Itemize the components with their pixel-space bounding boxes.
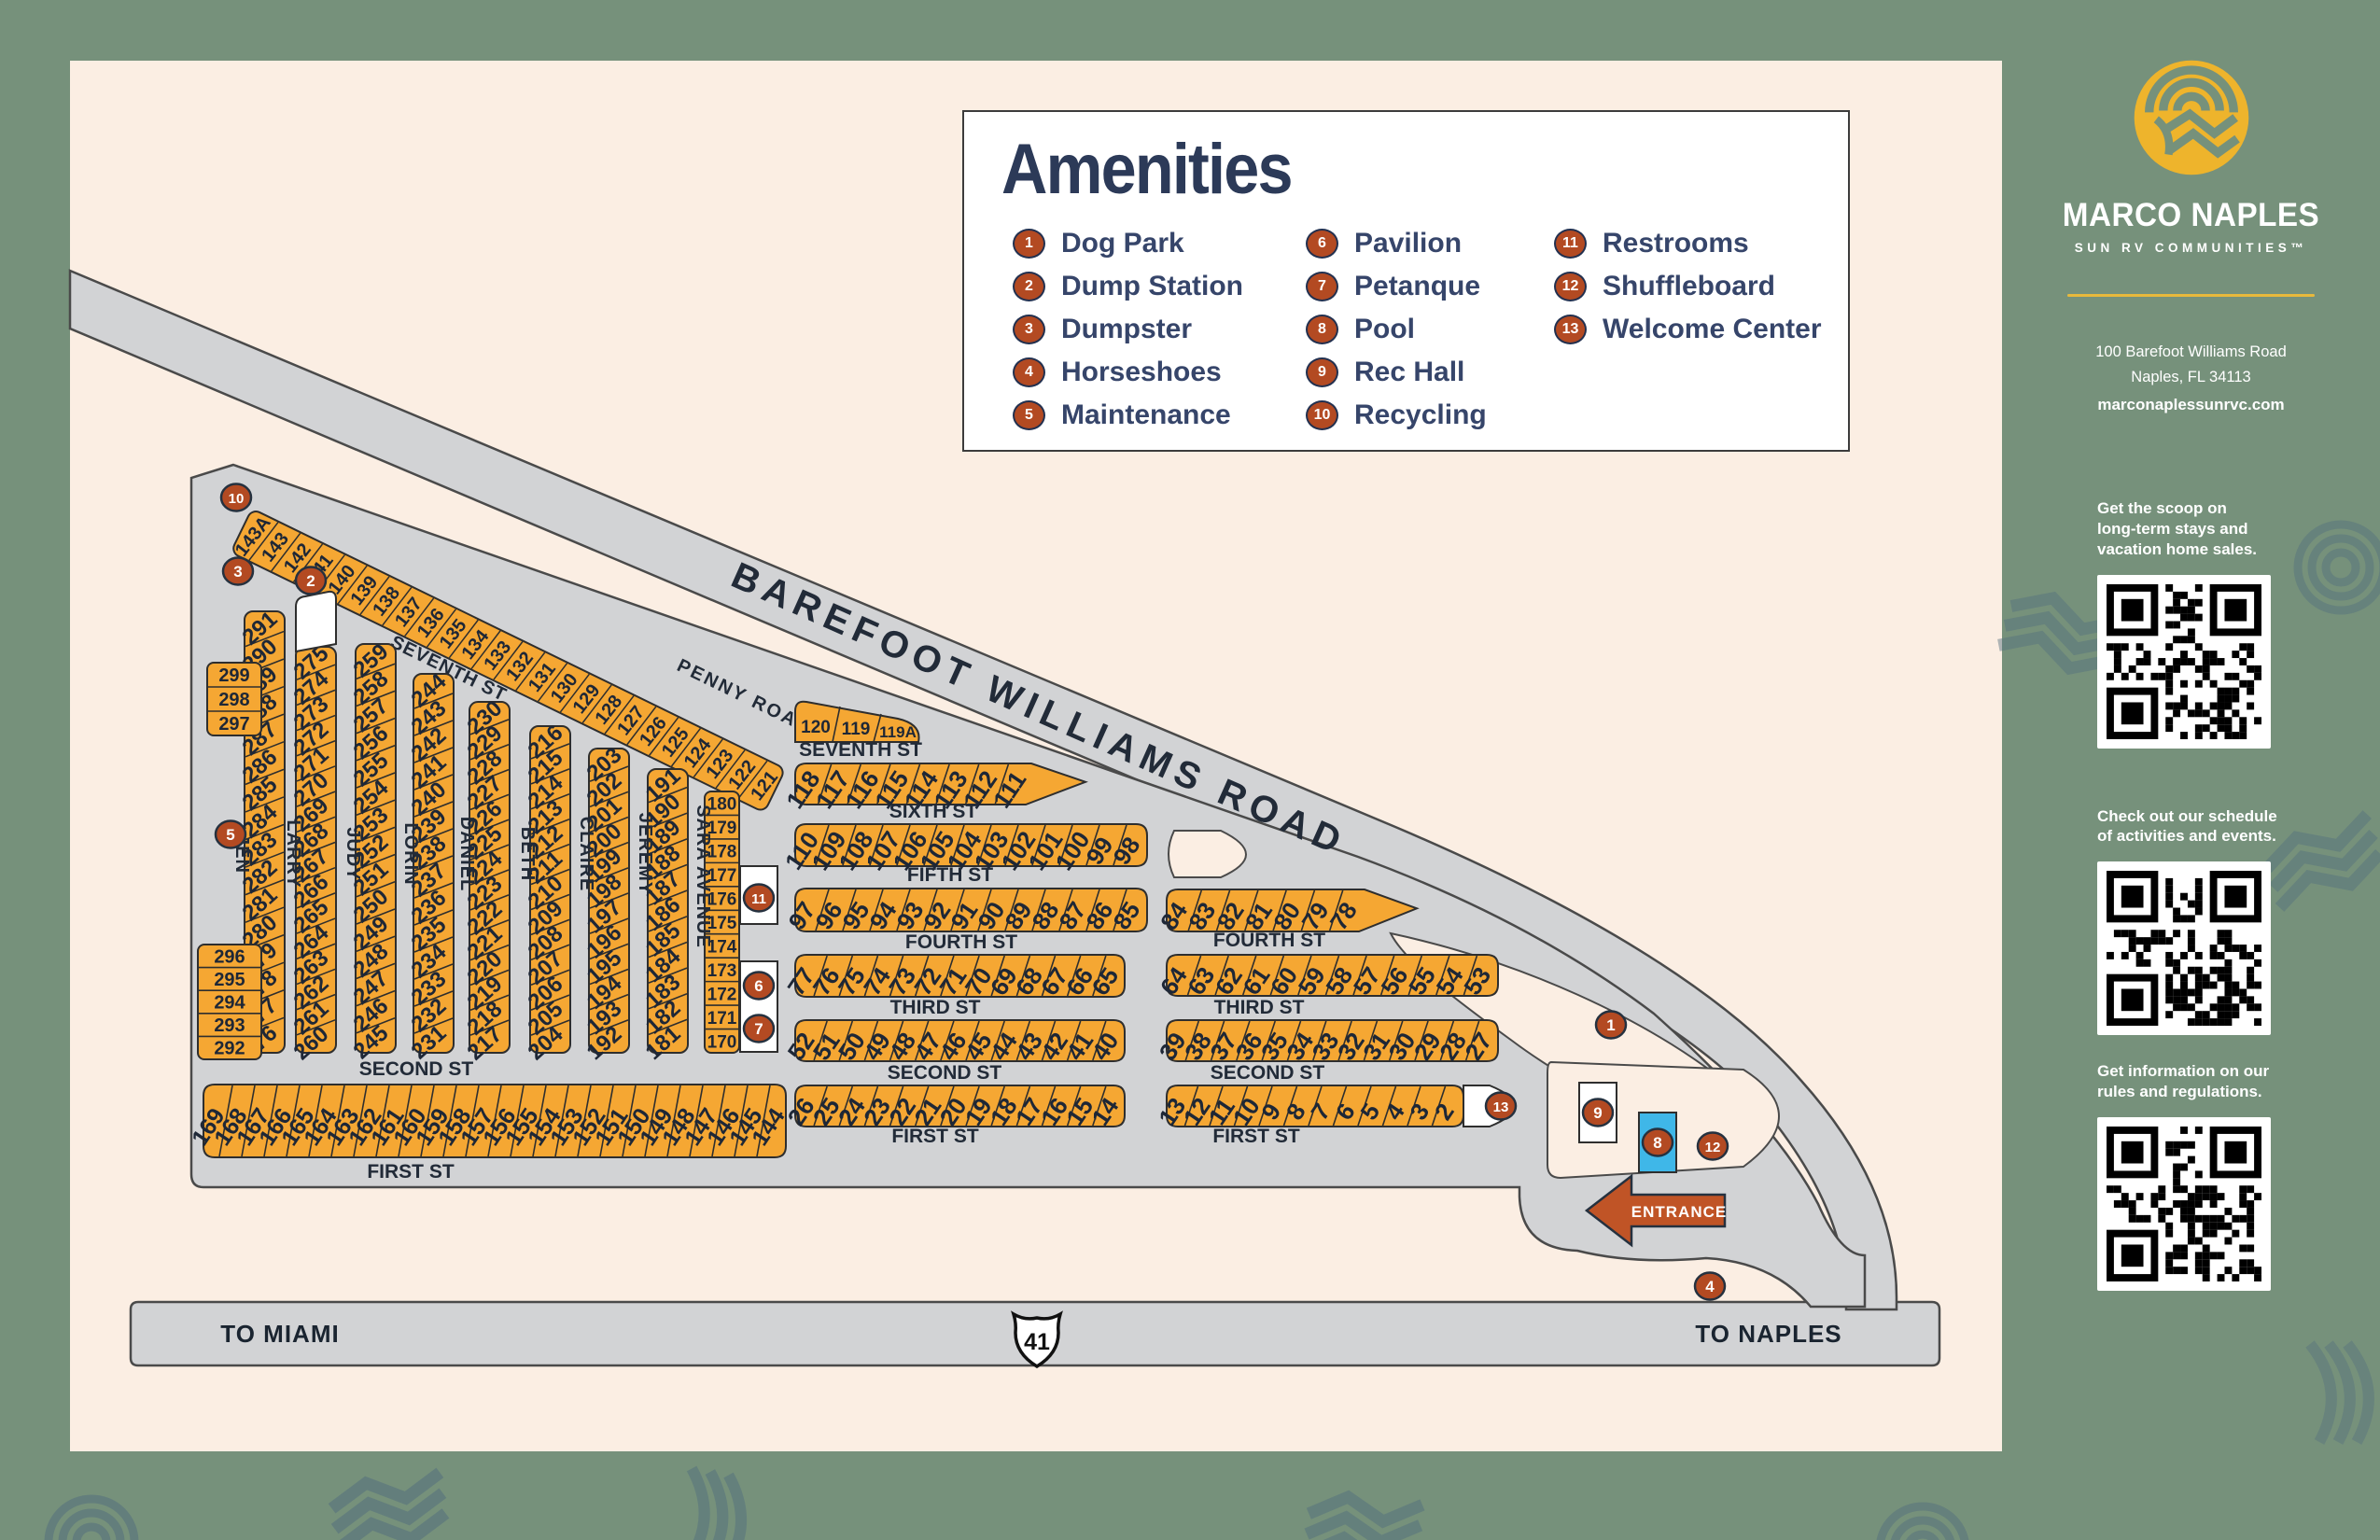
lot-row: 97969594939291908988878685 xyxy=(783,889,1147,934)
amenities-legend: Amenities 1Dog Park2Dump Station3Dumpste… xyxy=(962,110,1850,452)
street-label-fifth: FIFTH ST xyxy=(907,864,993,886)
map-marker-pavilion: 6 xyxy=(744,973,774,1000)
qr-code-stays[interactable] xyxy=(2097,575,2271,749)
amenity-label: Maintenance xyxy=(1061,399,1231,431)
lot-row: 1312111098765432 xyxy=(1153,1085,1463,1130)
amenity-label: Welcome Center xyxy=(1603,314,1822,345)
street-label-judy: JUDY xyxy=(343,827,363,880)
lot-row: 646362616059585756555453 xyxy=(1155,955,1498,1000)
poster: BAREFOOT WILLIAMS ROADPENNY ROADSEVENTH … xyxy=(0,0,2380,1540)
amenity-number-badge: 13 xyxy=(1554,315,1587,344)
marker-number: 10 xyxy=(229,491,245,507)
shield-number: 41 xyxy=(1024,1329,1050,1355)
map-marker-welcome-center: 13 xyxy=(1486,1093,1516,1120)
marker-number: 4 xyxy=(1705,1278,1715,1295)
lot-120: 120 xyxy=(801,718,831,737)
street-label-fourth-mid: FOURTH ST xyxy=(905,931,1017,953)
lot-172: 172 xyxy=(707,985,737,1004)
street-label-jeremy: JEREMY xyxy=(635,813,655,895)
lot-column: 216215214213212211210209208207206205204 xyxy=(524,720,570,1065)
amenity-number-badge: 5 xyxy=(1013,400,1045,430)
map-marker-horseshoes: 4 xyxy=(1695,1273,1725,1300)
amenity-number-badge: 3 xyxy=(1013,315,1045,344)
street-label-lorin: LORIN xyxy=(400,822,421,885)
lot-171: 171 xyxy=(707,1009,737,1029)
street-label-fourth-right: FOURTH ST xyxy=(1213,930,1325,951)
divider xyxy=(2067,294,2315,297)
qr-text: Get information on ourrules and regulati… xyxy=(2097,1061,2312,1102)
street-label-third-mid: THIRD ST xyxy=(890,997,981,1018)
median-pocket xyxy=(1169,831,1246,877)
lot-292: 292 xyxy=(214,1039,245,1059)
marker-number: 9 xyxy=(1593,1104,1602,1122)
lot-column: 203202201200199198197196195194193192 xyxy=(582,743,629,1066)
lot-296: 296 xyxy=(214,946,245,967)
marker-number: 7 xyxy=(754,1020,763,1038)
legend-item-dump-station: 2Dump Station xyxy=(1013,265,1243,308)
amenity-number-badge: 6 xyxy=(1306,229,1338,259)
lot-119: 119 xyxy=(842,720,871,739)
legend-item-dumpster: 3Dumpster xyxy=(1013,308,1243,351)
amenity-label: Rec Hall xyxy=(1354,357,1464,388)
legend-item-recycling: 10Recycling xyxy=(1306,394,1487,437)
marker-number: 6 xyxy=(754,977,763,995)
marker-number: 13 xyxy=(1493,1099,1509,1115)
lot-293: 293 xyxy=(214,1015,245,1036)
brand-logo-icon xyxy=(2130,56,2253,179)
map-marker-dump-station: 2 xyxy=(296,567,326,595)
amenity-number-badge: 12 xyxy=(1554,272,1587,301)
amenity-number-badge: 2 xyxy=(1013,272,1045,301)
street-label-second-mid: SECOND ST xyxy=(888,1062,1002,1084)
marker-number: 5 xyxy=(226,826,234,844)
lot-299: 299 xyxy=(218,665,249,686)
lot-row: 77767574737271706968676665 xyxy=(782,955,1125,1001)
website: marconaplessunrvc.com xyxy=(2002,392,2380,418)
amenity-label: Pavilion xyxy=(1354,228,1462,259)
street-label-first-right: FIRST ST xyxy=(1212,1126,1300,1147)
map-marker-dog-park: 1 xyxy=(1596,1012,1626,1039)
marker-number: 2 xyxy=(306,572,315,590)
qr-section-rules: Get information on ourrules and regulati… xyxy=(2097,1061,2312,1291)
address: 100 Barefoot Williams Road Naples, FL 34… xyxy=(2002,340,2380,418)
amenity-number-badge: 8 xyxy=(1306,315,1338,344)
lot-column: 191190189188187186185184183182181 xyxy=(641,763,688,1065)
amenity-label: Petanque xyxy=(1354,271,1480,302)
lot-298: 298 xyxy=(218,690,249,710)
dump-station-pad xyxy=(296,592,336,651)
lot-row: 39383736353433323130292827 xyxy=(1154,1020,1498,1065)
map-marker-petanque: 7 xyxy=(744,1015,774,1043)
map-marker-maintenance: 5 xyxy=(216,821,245,848)
lot-173: 173 xyxy=(707,961,737,981)
amenity-number-badge: 9 xyxy=(1306,357,1338,387)
qr-code-rules[interactable] xyxy=(2097,1117,2271,1291)
label-to-naples: TO NAPLES xyxy=(1695,1320,1841,1348)
amenity-number-badge: 10 xyxy=(1306,400,1338,430)
street-label-larry: LARRY xyxy=(283,819,303,888)
map-marker-shuffleboard: 12 xyxy=(1698,1133,1728,1160)
lot-block: 299298297 xyxy=(207,663,261,735)
sidebar: MARCO NAPLES SUN RV COMMUNITIES™ 100 Bar… xyxy=(2002,0,2380,1540)
legend-item-pool: 8Pool xyxy=(1306,308,1487,351)
marker-number: 8 xyxy=(1653,1134,1661,1152)
legend-item-dog-park: 1Dog Park xyxy=(1013,222,1243,265)
marker-number: 1 xyxy=(1606,1016,1615,1034)
lot-297: 297 xyxy=(218,714,249,735)
qr-code-activities[interactable] xyxy=(2097,861,2271,1035)
legend-item-maintenance: 5Maintenance xyxy=(1013,394,1243,437)
street-label-claire: CLAIRE xyxy=(576,817,596,891)
legend-item-pavilion: 6Pavilion xyxy=(1306,222,1487,265)
street-label-first-left: FIRST ST xyxy=(367,1161,455,1183)
street-label-seventh: SEVENTH ST xyxy=(799,739,922,761)
lot-row: 26252423222120191817161514 xyxy=(782,1085,1125,1130)
street-label-second-right: SECOND ST xyxy=(1211,1062,1325,1084)
map-marker-restrooms: 11 xyxy=(744,885,774,912)
lot-294: 294 xyxy=(214,993,245,1014)
map-marker-rec-hall: 9 xyxy=(1583,1099,1613,1127)
brand-tagline: SUN RV COMMUNITIES™ xyxy=(2002,241,2380,255)
street-label-daniel: DANIEL xyxy=(456,817,477,891)
legend-item-welcome-center: 13Welcome Center xyxy=(1554,308,1822,351)
marker-number: 11 xyxy=(751,891,766,907)
lot-170: 170 xyxy=(707,1032,737,1052)
map-marker-dumpster: 3 xyxy=(223,558,253,585)
street-label-second-left: SECOND ST xyxy=(359,1058,474,1080)
amenity-label: Shuffleboard xyxy=(1603,271,1775,302)
legend-item-rec-hall: 9Rec Hall xyxy=(1306,351,1487,394)
street-label-sara-avenue: SARA AVENUE xyxy=(693,805,713,948)
lot-block: 296295294293292 xyxy=(198,945,261,1059)
qr-section-activities: Check out our scheduleof activities and … xyxy=(2097,806,2312,1036)
legend-item-petanque: 7Petanque xyxy=(1306,265,1487,308)
street-label-third-right: THIRD ST xyxy=(1214,997,1305,1018)
lot-295: 295 xyxy=(214,970,245,990)
amenity-label: Dumpster xyxy=(1061,314,1192,345)
amenity-number-badge: 4 xyxy=(1013,357,1045,387)
legend-item-horseshoes: 4Horseshoes xyxy=(1013,351,1243,394)
amenity-label: Dog Park xyxy=(1061,228,1184,259)
amenity-number-badge: 11 xyxy=(1554,229,1587,259)
amenity-label: Pool xyxy=(1354,314,1415,345)
label-to-miami: TO MIAMI xyxy=(220,1320,339,1348)
legend-title: Amenities xyxy=(1001,129,1292,210)
legend-item-shuffleboard: 12Shuffleboard xyxy=(1554,265,1822,308)
amenity-label: Restrooms xyxy=(1603,228,1749,259)
qr-text: Check out our scheduleof activities and … xyxy=(2097,806,2312,847)
amenity-label: Dump Station xyxy=(1061,271,1243,302)
map-marker-pool: 8 xyxy=(1643,1129,1673,1156)
marker-number: 12 xyxy=(1705,1140,1721,1155)
qr-text: Get the scoop onlong-term stays andvacat… xyxy=(2097,498,2312,559)
lot-row: 52515049484746454443424140 xyxy=(782,1020,1125,1065)
amenity-number-badge: 1 xyxy=(1013,229,1045,259)
qr-section-stays: Get the scoop onlong-term stays andvacat… xyxy=(2097,498,2312,748)
street-label-beth: BETH xyxy=(517,827,538,881)
amenity-number-badge: 7 xyxy=(1306,272,1338,301)
legend-item-restrooms: 11Restrooms xyxy=(1554,222,1822,265)
amenity-label: Recycling xyxy=(1354,399,1487,431)
map-marker-recycling: 10 xyxy=(221,484,251,511)
lot-row: 1691681671661651641631621611601591581571… xyxy=(187,1085,791,1157)
marker-number: 3 xyxy=(233,563,242,581)
amenity-label: Horseshoes xyxy=(1061,357,1222,388)
entrance-label: ENTRANCE xyxy=(1631,1203,1727,1221)
street-label-sixth: SIXTH ST xyxy=(889,801,978,822)
street-label-first-mid: FIRST ST xyxy=(891,1126,979,1147)
brand-name: MARCO NAPLES xyxy=(2011,197,2371,234)
